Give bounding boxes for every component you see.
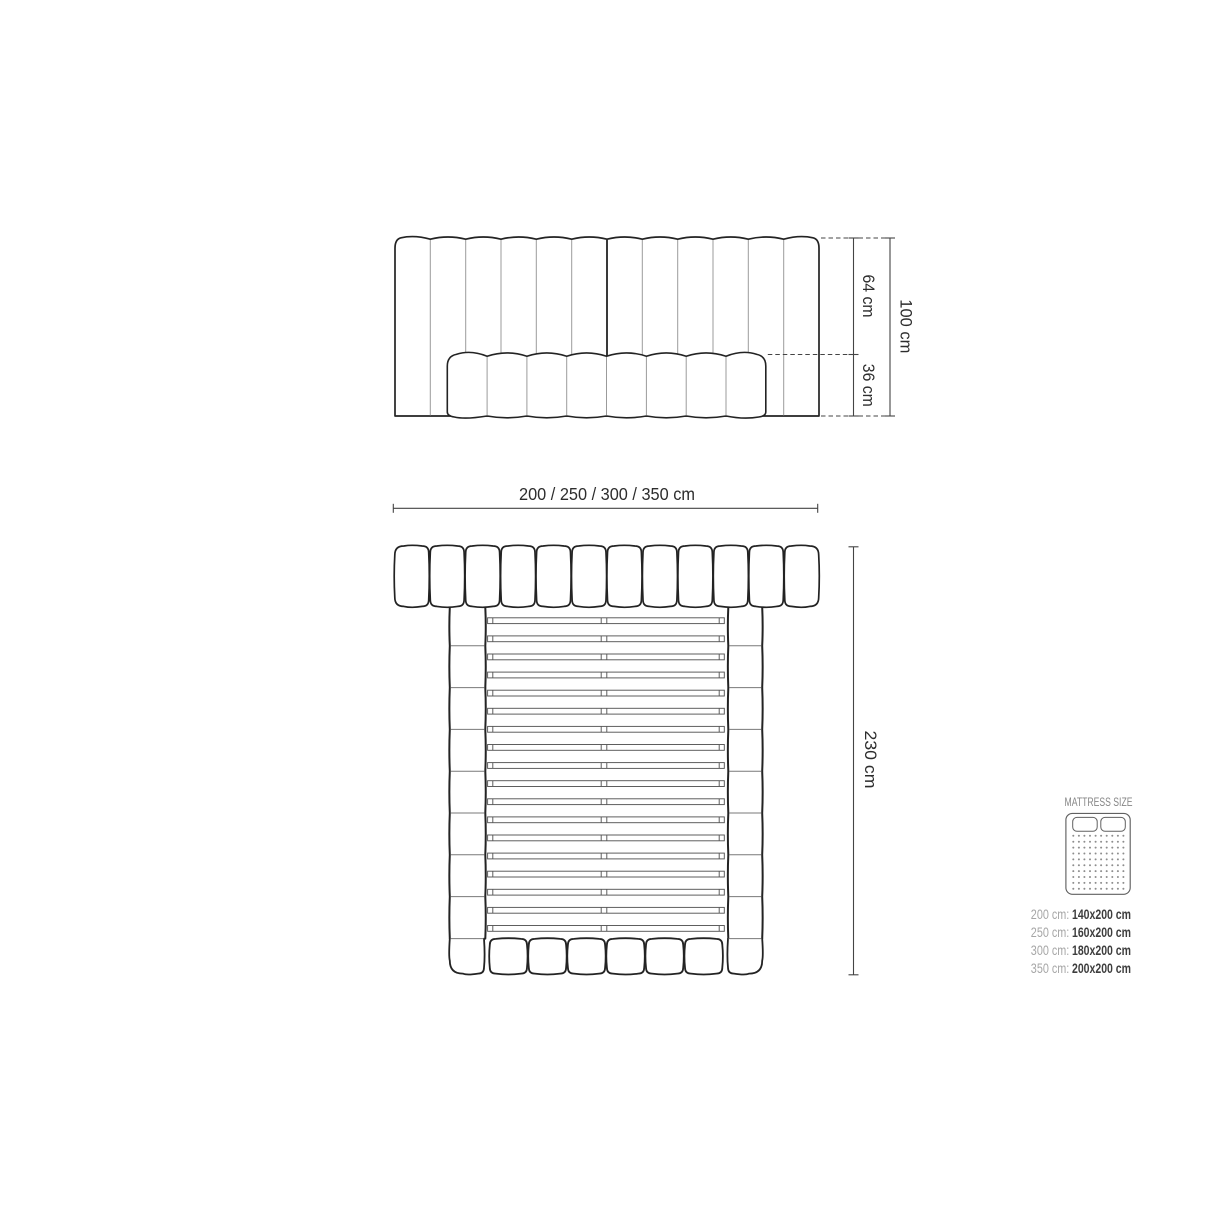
svg-text:64 cm: 64 cm	[859, 275, 878, 318]
svg-text:36 cm: 36 cm	[859, 364, 878, 407]
svg-text:180x200 cm: 180x200 cm	[1072, 943, 1131, 958]
svg-text:250 cm:: 250 cm:	[1031, 925, 1070, 940]
svg-text:200 cm:: 200 cm:	[1031, 907, 1070, 922]
svg-text:MATTRESS SIZE: MATTRESS SIZE	[1065, 795, 1133, 809]
svg-text:140x200 cm: 140x200 cm	[1072, 907, 1131, 922]
svg-text:200 / 250 / 300 / 350 cm: 200 / 250 / 300 / 350 cm	[519, 484, 695, 504]
svg-text:300 cm:: 300 cm:	[1031, 943, 1070, 958]
svg-text:200x200 cm: 200x200 cm	[1072, 961, 1131, 976]
svg-text:160x200 cm: 160x200 cm	[1072, 925, 1131, 940]
svg-text:350 cm:: 350 cm:	[1031, 961, 1070, 976]
svg-text:230 cm: 230 cm	[861, 731, 880, 789]
svg-text:100 cm: 100 cm	[897, 299, 916, 353]
